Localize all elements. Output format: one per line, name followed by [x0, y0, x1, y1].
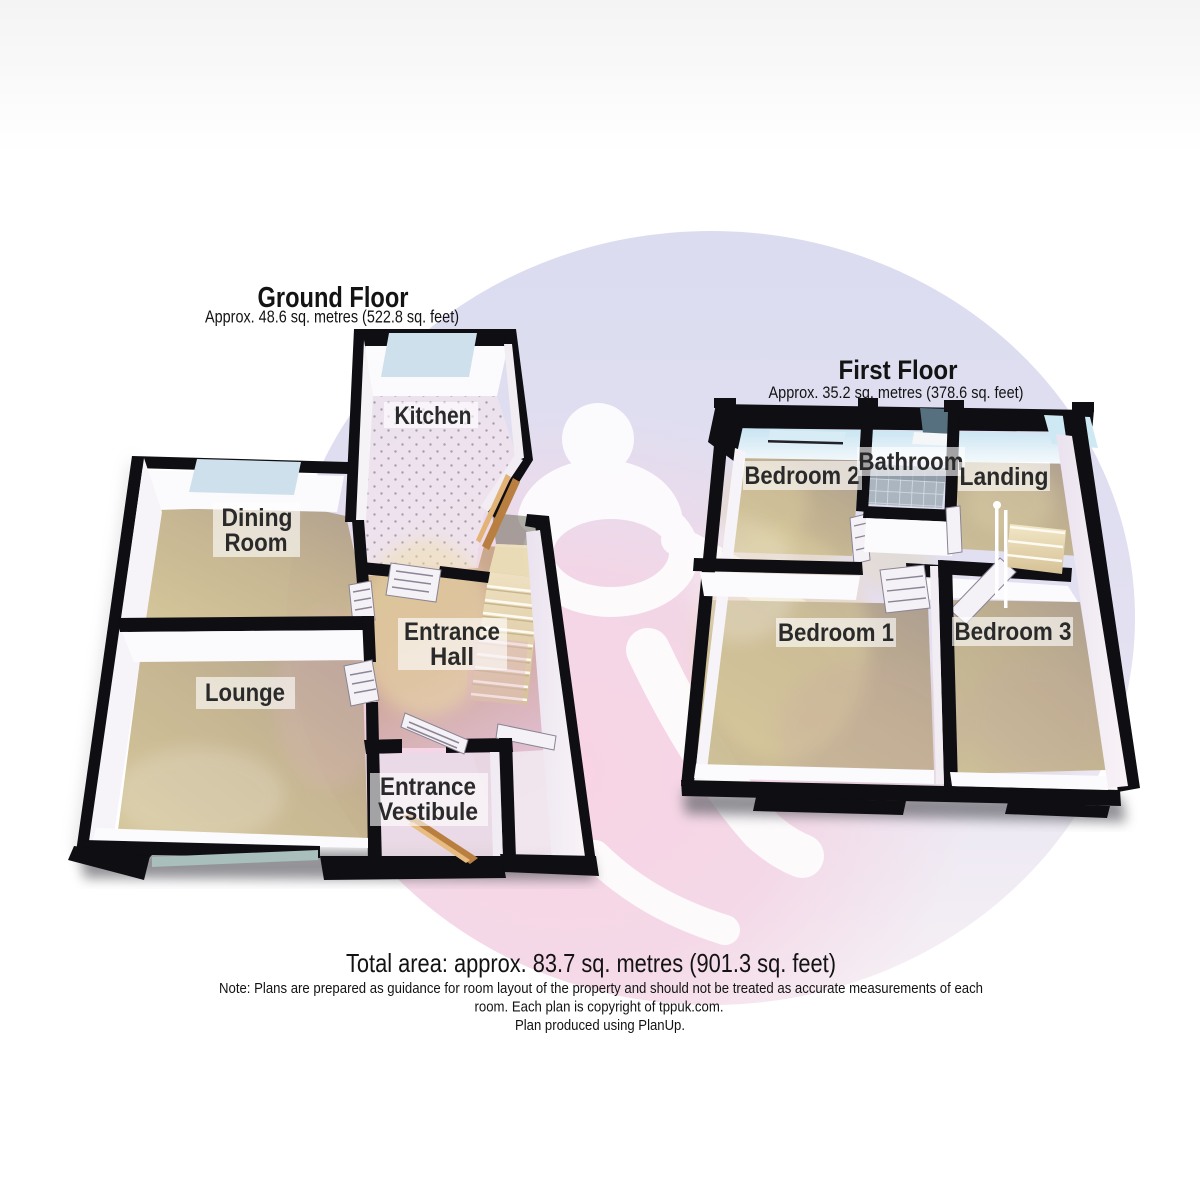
svg-text:Approx. 35.2 sq. metres (378.6: Approx. 35.2 sq. metres (378.6 sq. feet): [769, 384, 1024, 402]
svg-text:Vestibule: Vestibule: [378, 798, 478, 826]
svg-text:Hall: Hall: [430, 643, 474, 671]
svg-text:Entrance: Entrance: [404, 618, 500, 646]
svg-text:room. Each plan is copyright o: room. Each plan is copyright of tppuk.co…: [475, 999, 724, 1016]
svg-text:Room: Room: [225, 529, 288, 557]
svg-text:Kitchen: Kitchen: [395, 402, 472, 430]
svg-text:Entrance: Entrance: [380, 773, 476, 801]
svg-text:Dining: Dining: [222, 504, 293, 532]
svg-text:Bedroom 2: Bedroom 2: [745, 462, 860, 490]
svg-text:Plan produced using PlanUp.: Plan produced using PlanUp.: [515, 1017, 685, 1034]
svg-text:Total area: approx. 83.7 sq. m: Total area: approx. 83.7 sq. metres (901…: [346, 948, 836, 978]
svg-text:Landing: Landing: [960, 463, 1049, 491]
svg-text:Approx. 48.6 sq. metres (522.8: Approx. 48.6 sq. metres (522.8 sq. feet): [205, 307, 459, 327]
svg-text:Bathroom: Bathroom: [859, 448, 964, 476]
svg-text:Bedroom 3: Bedroom 3: [955, 618, 1072, 646]
svg-text:Lounge: Lounge: [205, 679, 285, 707]
svg-text:Note: Plans are prepared as gu: Note: Plans are prepared as guidance for…: [219, 980, 983, 997]
svg-text:Bedroom 1: Bedroom 1: [778, 619, 894, 647]
svg-text:First Floor: First Floor: [839, 355, 958, 385]
